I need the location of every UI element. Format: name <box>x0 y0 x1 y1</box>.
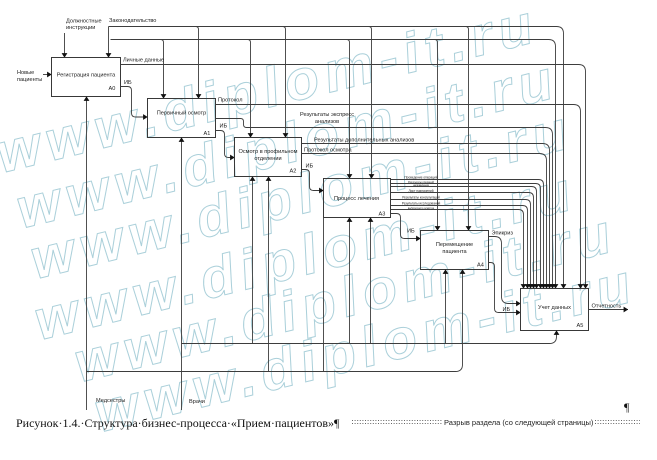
svg-text:А5: А5 <box>577 323 584 329</box>
svg-text:пациента: пациента <box>442 249 467 255</box>
svg-text:Отчетность: Отчетность <box>592 304 622 310</box>
svg-text:Новые: Новые <box>17 70 34 76</box>
svg-text:Результаты консультаций: Результаты консультаций <box>402 196 440 200</box>
svg-text:ИБ: ИБ <box>407 229 415 235</box>
svg-text:Регистрация пациента: Регистрация пациента <box>57 73 116 79</box>
svg-text:Учет данных: Учет данных <box>538 305 571 311</box>
svg-text:Результаты исследований: Результаты исследований <box>402 202 441 206</box>
svg-text:Протокол осмотра: Протокол осмотра <box>304 148 352 154</box>
svg-text:Проведение операций: Проведение операций <box>404 176 437 180</box>
svg-text:анализов: анализов <box>315 119 339 125</box>
svg-text:Результаты экспресс: Результаты экспресс <box>300 112 354 118</box>
svg-text:Лист назначений: Лист назначений <box>409 189 434 193</box>
svg-text:Результаты дополнительных анал: Результаты дополнительных анализов <box>314 138 414 144</box>
svg-text:Перемещение: Перемещение <box>436 242 473 248</box>
svg-text:Осмотр в профильном: Осмотр в профильном <box>239 149 298 155</box>
svg-text:инструкции: инструкции <box>66 25 95 31</box>
svg-text:А2: А2 <box>290 169 297 175</box>
svg-text:направления: направления <box>413 184 429 187</box>
svg-text:¶: ¶ <box>624 400 630 414</box>
svg-text:А4: А4 <box>477 263 484 269</box>
svg-text:Законодательство: Законодательство <box>109 18 156 24</box>
svg-text:Медсестры: Медсестры <box>96 398 125 404</box>
svg-text:Первичный осмотр: Первичный осмотр <box>157 110 206 117</box>
svg-text:Рисунок·1.4.·Структура·бизнес-: Рисунок·1.4.·Структура·бизнес-процесса·«… <box>16 416 340 430</box>
svg-text:ИБ: ИБ <box>124 80 132 86</box>
svg-text:А1: А1 <box>204 131 211 137</box>
svg-text:Должностные: Должностные <box>66 19 102 25</box>
svg-text:Личные данные: Личные данные <box>123 58 164 64</box>
svg-text:ИБ: ИБ <box>220 124 228 130</box>
svg-text:Эпикриз: Эпикриз <box>492 231 514 237</box>
svg-text:пациенты: пациенты <box>17 77 42 83</box>
svg-text:А0: А0 <box>109 86 116 92</box>
svg-text:отделении: отделении <box>254 156 281 162</box>
svg-text:выборочного осмотра: выборочного осмотра <box>408 206 435 210</box>
svg-text:А3: А3 <box>379 212 386 218</box>
svg-text:Процесс лечения: Процесс лечения <box>334 196 379 202</box>
svg-text:Врачи: Врачи <box>189 399 205 405</box>
svg-text:Разрыв раздела (со следующей с: Разрыв раздела (со следующей страницы) <box>444 418 594 427</box>
svg-text:ИБ: ИБ <box>306 164 314 170</box>
svg-text:Протокол: Протокол <box>218 98 243 104</box>
